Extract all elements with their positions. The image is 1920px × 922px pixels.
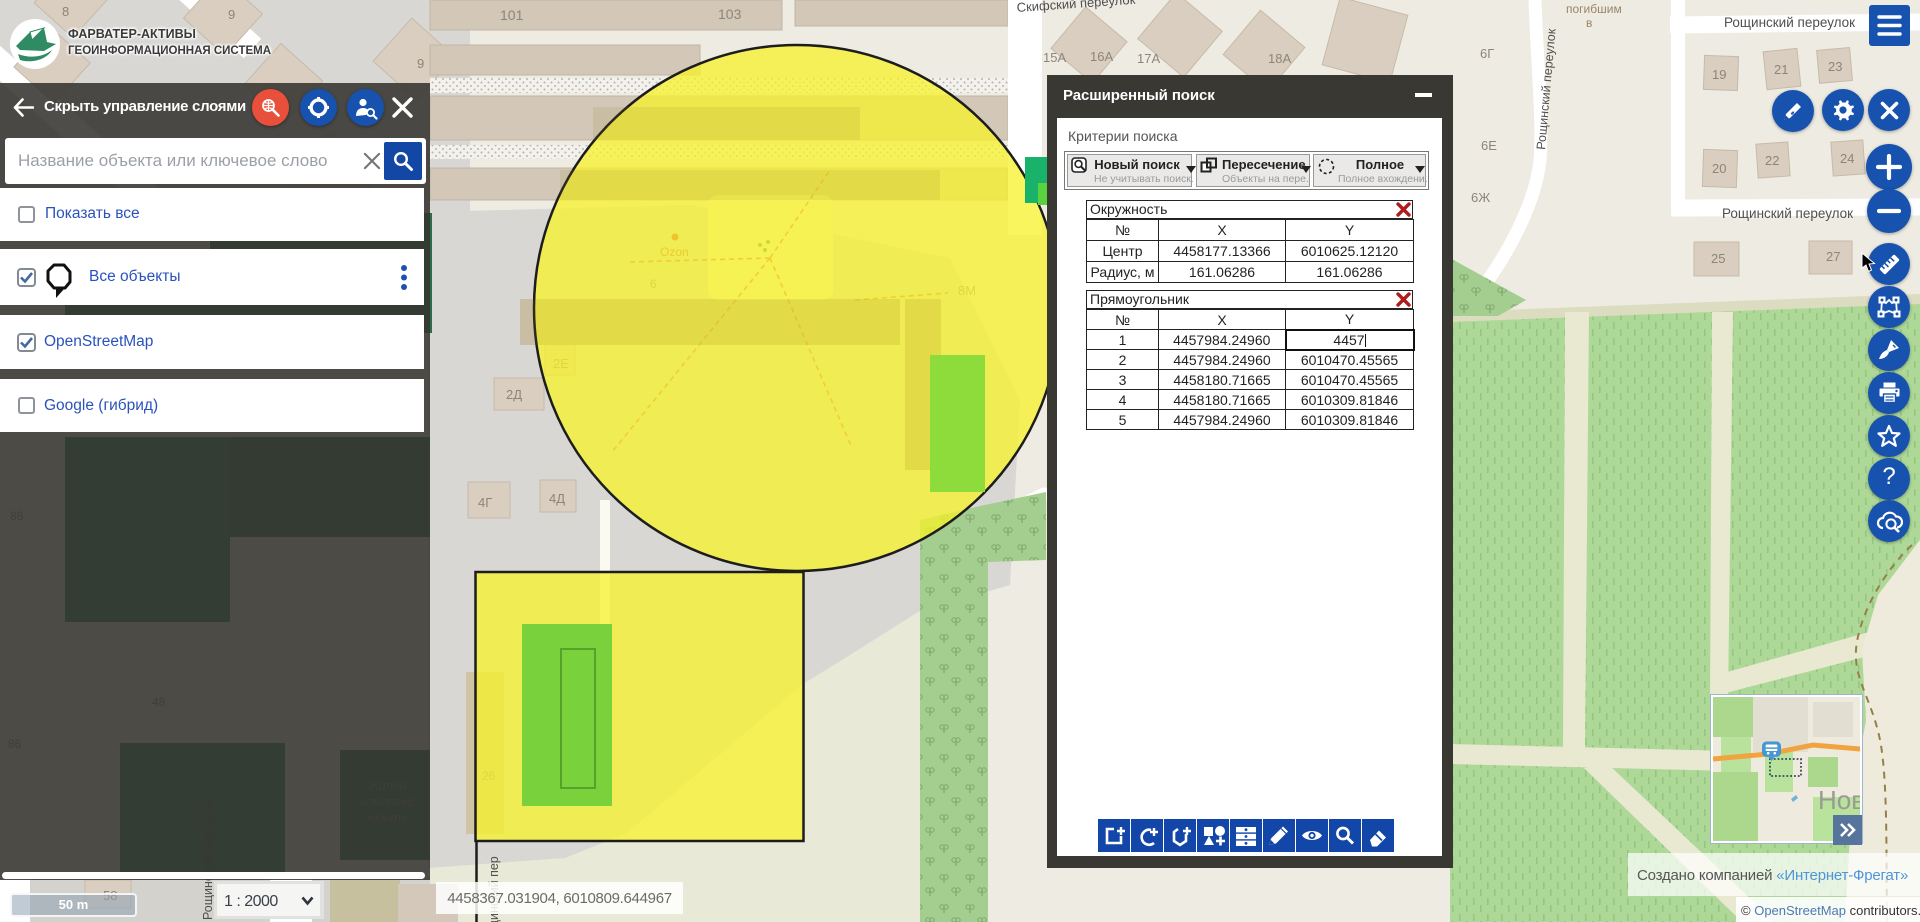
svg-text:101: 101 bbox=[500, 7, 524, 23]
svg-text:Рощинский переулок: Рощинский переулок bbox=[1724, 15, 1855, 30]
svg-text:6Е: 6Е bbox=[1481, 138, 1497, 153]
svg-text:18A: 18A bbox=[1268, 51, 1291, 66]
svg-text:20: 20 bbox=[1712, 161, 1726, 176]
svg-text:25: 25 bbox=[1711, 251, 1725, 266]
svg-text:19: 19 bbox=[1712, 67, 1726, 82]
svg-text:6Ж: 6Ж bbox=[1471, 190, 1490, 205]
svg-text:в: в bbox=[1586, 16, 1592, 30]
svg-text:22: 22 bbox=[1765, 153, 1779, 168]
svg-text:24: 24 bbox=[1840, 151, 1854, 166]
svg-text:9: 9 bbox=[417, 56, 424, 71]
svg-text:21: 21 bbox=[1774, 62, 1788, 77]
svg-text:103: 103 bbox=[718, 6, 742, 22]
svg-text:2Д: 2Д bbox=[506, 387, 522, 402]
svg-text:4Д: 4Д bbox=[549, 491, 565, 506]
svg-text:4Г: 4Г bbox=[478, 495, 492, 510]
svg-text:8: 8 bbox=[62, 4, 69, 19]
svg-text:погибшим: погибшим bbox=[1566, 2, 1622, 16]
svg-text:6Г: 6Г bbox=[1480, 46, 1494, 61]
svg-text:15A: 15A bbox=[1043, 50, 1066, 65]
svg-text:17A: 17A bbox=[1137, 51, 1160, 66]
svg-text:23: 23 bbox=[1828, 59, 1842, 74]
svg-text:Рощинский переулок: Рощинский переулок bbox=[1722, 206, 1853, 221]
svg-text:27: 27 bbox=[1826, 249, 1840, 264]
svg-text:Нов: Нов bbox=[1818, 785, 1860, 815]
svg-text:9: 9 bbox=[228, 7, 235, 22]
svg-text:16A: 16A bbox=[1090, 49, 1113, 64]
